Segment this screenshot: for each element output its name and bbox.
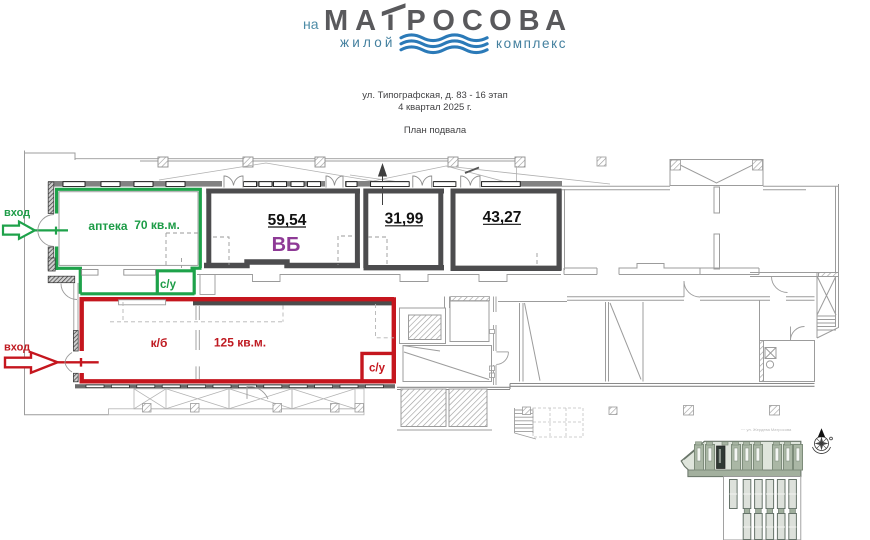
svg-text:~~ ул. Жердева Матросова: ~~ ул. Жердева Матросова xyxy=(741,427,792,432)
svg-text:31,99: 31,99 xyxy=(385,211,424,228)
svg-text:ул. Типографская, д. 83 - 16 э: ул. Типографская, д. 83 - 16 этап xyxy=(362,90,508,101)
svg-text:ВБ: ВБ xyxy=(272,234,301,256)
svg-text:на: на xyxy=(303,16,319,32)
svg-text:вход: вход xyxy=(4,342,30,354)
svg-text:43,27: 43,27 xyxy=(483,209,522,226)
svg-text:План подвала: План подвала xyxy=(404,125,467,136)
svg-text:комплекс: комплекс xyxy=(496,36,567,51)
svg-text:вход: вход xyxy=(4,207,30,219)
svg-text:к/б: к/б xyxy=(151,336,168,350)
svg-text:аптека: аптека xyxy=(88,219,127,233)
svg-text:с/у: с/у xyxy=(160,279,177,291)
svg-text:с/у: с/у xyxy=(369,363,386,375)
svg-text:4 квартал 2025 г.: 4 квартал 2025 г. xyxy=(398,102,472,113)
svg-text:жилой: жилой xyxy=(340,35,396,50)
svg-text:125 кв.м.: 125 кв.м. xyxy=(214,336,266,350)
svg-text:МАТРОСОВА: МАТРОСОВА xyxy=(324,5,573,37)
svg-text:70 кв.м.: 70 кв.м. xyxy=(134,218,180,232)
